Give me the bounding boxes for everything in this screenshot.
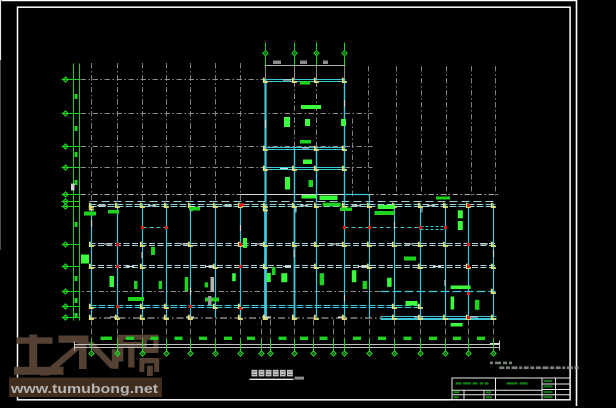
svg-text:www.tumubong.net: www.tumubong.net [10,381,159,396]
